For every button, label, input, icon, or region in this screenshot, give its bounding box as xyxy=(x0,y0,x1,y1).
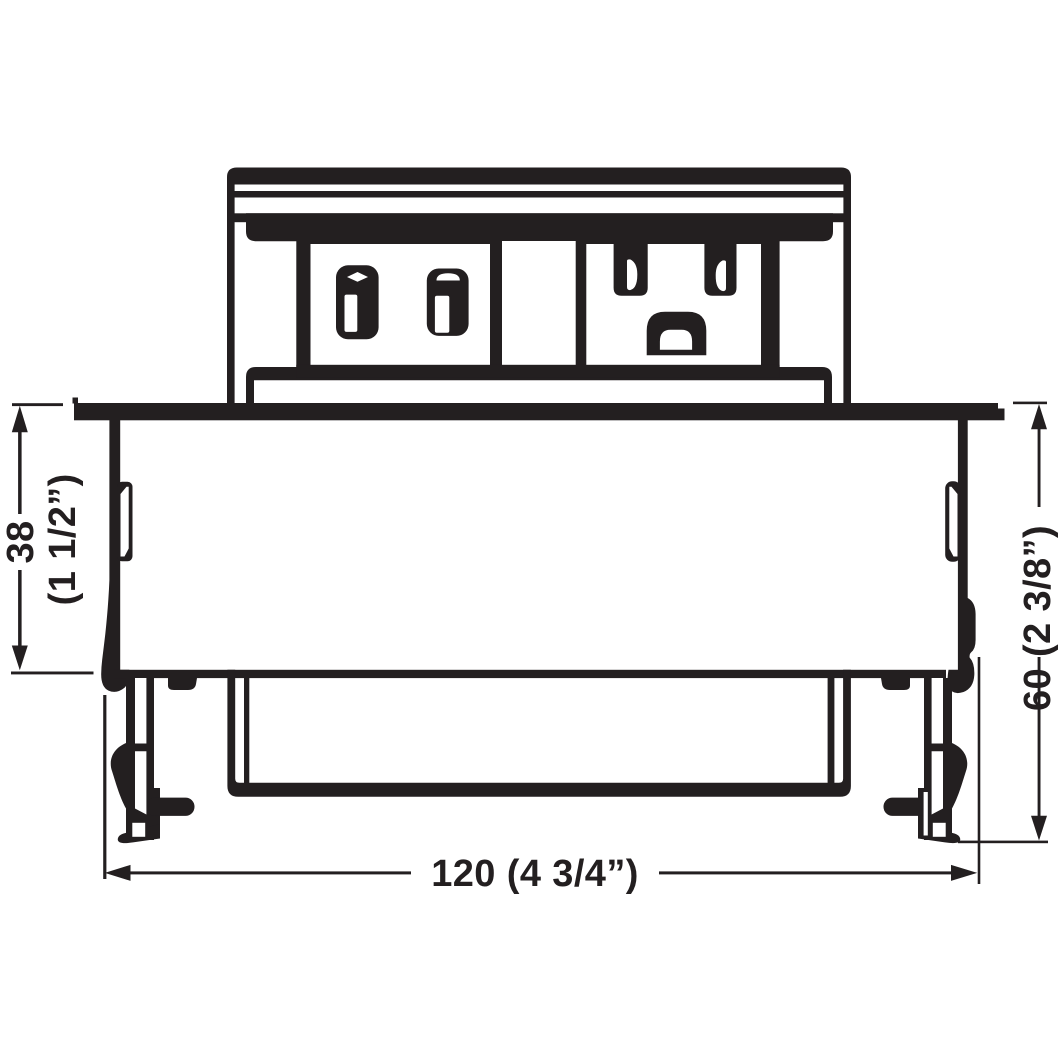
svg-text:38: 38 xyxy=(0,520,42,563)
svg-text:120 (4 3/4”): 120 (4 3/4”) xyxy=(431,853,639,895)
svg-text:(1 1/2”): (1 1/2”) xyxy=(42,473,84,605)
svg-text:60 (2 3/8”): 60 (2 3/8”) xyxy=(1017,525,1058,711)
